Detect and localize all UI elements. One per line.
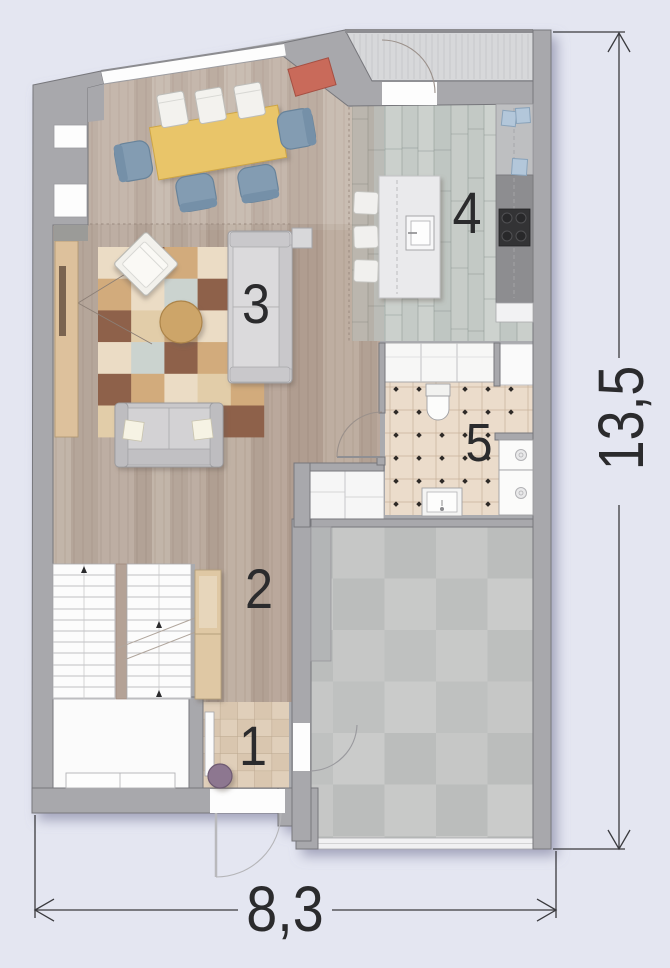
svg-text:5: 5 (465, 412, 492, 473)
svg-text:4: 4 (452, 180, 481, 245)
svg-text:13,5: 13,5 (585, 366, 658, 471)
svg-text:3: 3 (242, 274, 270, 336)
svg-text:2: 2 (245, 559, 273, 621)
svg-text:8,3: 8,3 (246, 873, 323, 944)
svg-text:1: 1 (239, 716, 267, 778)
